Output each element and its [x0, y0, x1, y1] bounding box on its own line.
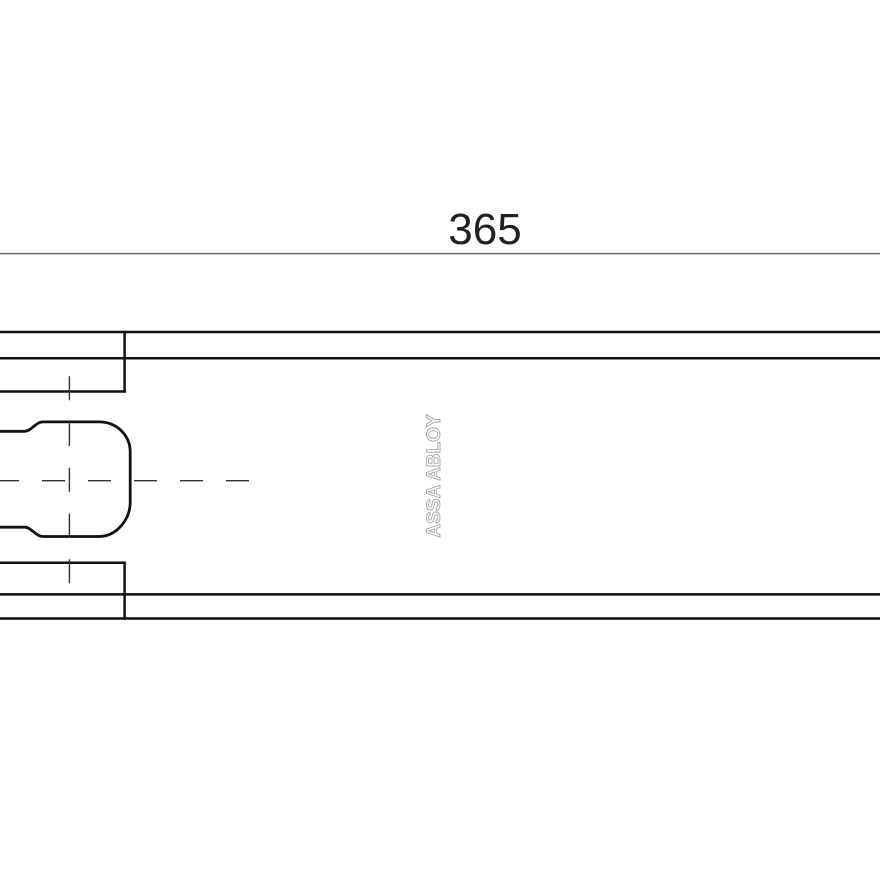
svg-text:ASSA ABLOY: ASSA ABLOY: [424, 414, 445, 537]
svg-text:365: 365: [448, 205, 521, 254]
